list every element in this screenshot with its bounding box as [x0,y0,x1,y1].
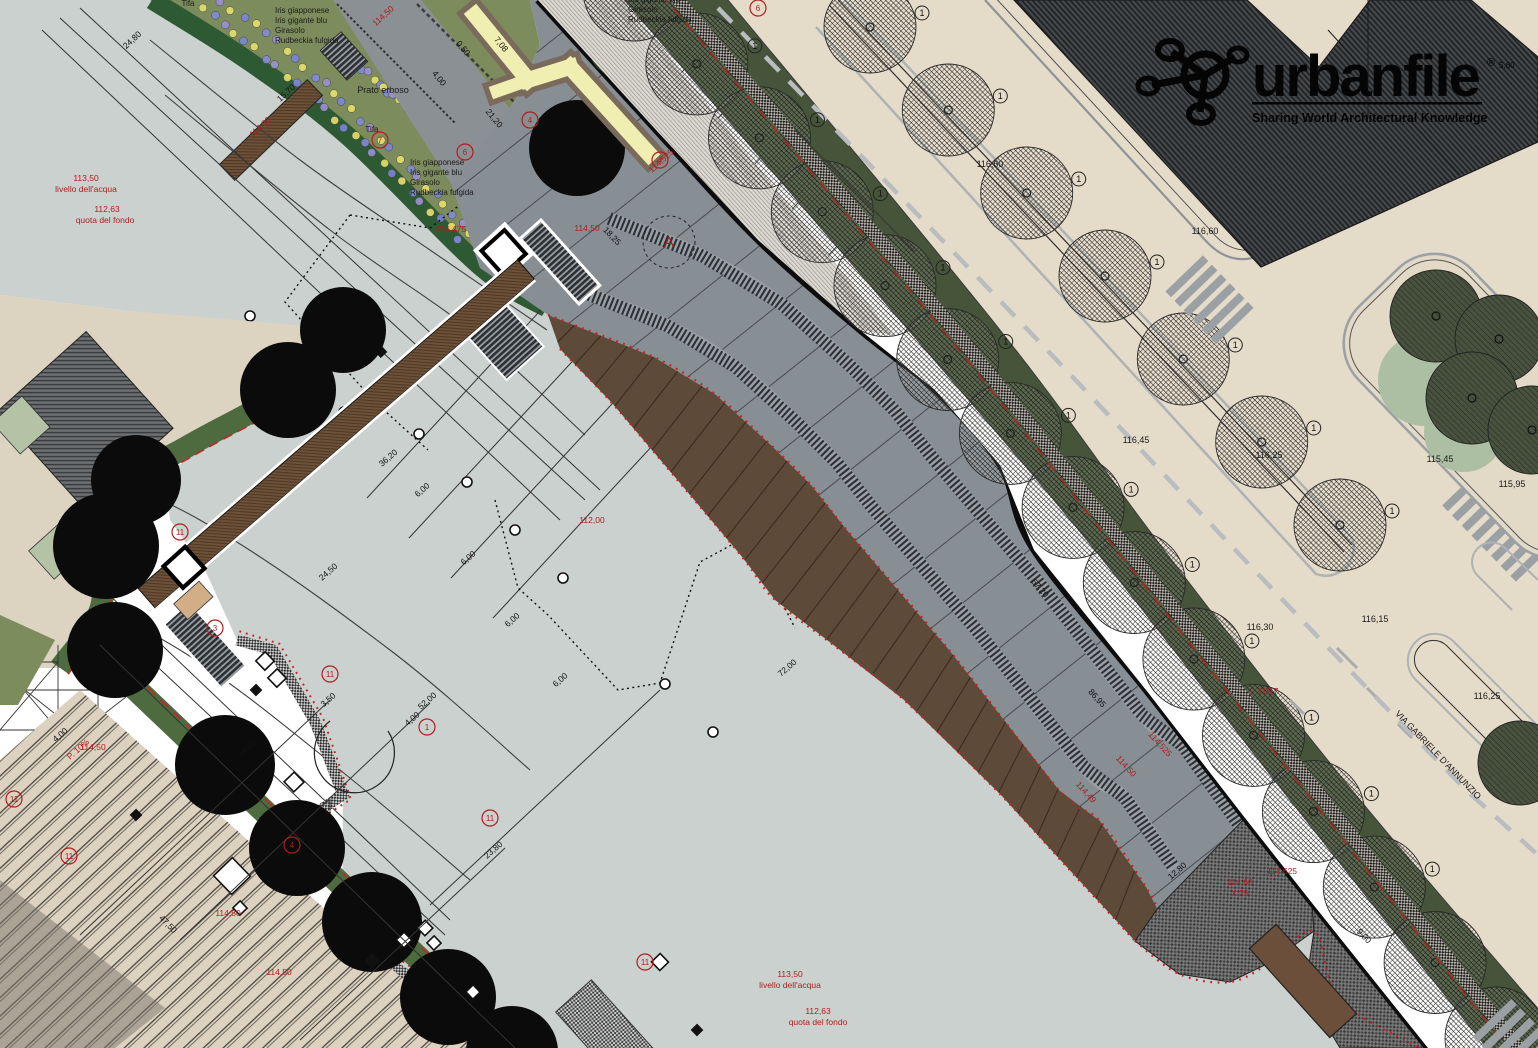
svg-text:115,45: 115,45 [1427,454,1454,464]
svg-text:3: 3 [213,624,218,633]
svg-text:urbanfile: urbanfile [1252,44,1480,109]
svg-text:112,63: 112,63 [805,1006,831,1016]
svg-text:6: 6 [463,148,468,157]
svg-text:116,25: 116,25 [1256,450,1283,460]
svg-text:Iris gigante blu: Iris gigante blu [628,0,680,4]
svg-text:4: 4 [290,841,295,850]
svg-text:1: 1 [919,8,924,18]
svg-text:114,50: 114,50 [266,967,292,977]
svg-text:11: 11 [10,795,19,804]
svg-text:1: 1 [1249,636,1254,646]
svg-text:116,15: 116,15 [1362,614,1389,624]
svg-text:116,60: 116,60 [1192,226,1219,236]
svg-text:Girasolo: Girasolo [410,178,440,187]
svg-text:Iris gigante blu: Iris gigante blu [410,168,462,177]
svg-text:5,60: 5,60 [1499,61,1515,70]
svg-text:11: 11 [486,814,495,823]
svg-text:114,50: 114,50 [574,223,600,233]
svg-text:4: 4 [658,156,663,165]
svg-text:1: 1 [1076,174,1081,184]
svg-text:Iris giapponese: Iris giapponese [275,6,330,15]
svg-text:1: 1 [1369,789,1374,799]
svg-text:®: ® [1487,57,1495,69]
svg-text:116,30: 116,30 [1247,622,1274,632]
svg-text:X,25: X,25 [1231,888,1249,898]
svg-text:quota del fondo: quota del fondo [76,215,135,225]
svg-text:Girasolo: Girasolo [275,26,305,35]
svg-text:Sharing World Architectural Kn: Sharing World Architectural Knowledge [1252,111,1487,125]
svg-text:114,50: 114,50 [215,908,241,918]
svg-text:7: 7 [378,136,383,145]
svg-text:livello dell'acqua: livello dell'acqua [759,980,821,990]
svg-text:Girasolo: Girasolo [628,5,658,14]
svg-text:116,25: 116,25 [1474,691,1501,701]
svg-text:112,63: 112,63 [94,204,120,214]
svg-text:116,60: 116,60 [977,159,1004,169]
svg-text:Tifa: Tifa [365,125,379,134]
svg-text:1: 1 [815,115,820,125]
svg-text:Rudbeckia fulgida: Rudbeckia fulgida [410,188,474,197]
svg-text:Rudbeckia fulgida: Rudbeckia fulgida [628,15,692,24]
svg-text:Prato erboso: Prato erboso [357,85,409,95]
svg-text:1: 1 [1154,257,1159,267]
svg-text:1: 1 [1233,340,1238,350]
svg-text:112,00: 112,00 [579,515,605,525]
svg-text:113,50: 113,50 [777,969,803,979]
svg-text:114,60: 114,60 [1227,877,1253,887]
svg-text:1: 1 [878,189,883,199]
svg-text:quota del fondo: quota del fondo [789,1017,848,1027]
svg-text:1: 1 [1129,484,1134,494]
svg-text:116,45: 116,45 [1123,435,1150,445]
svg-text:11: 11 [65,852,74,861]
svg-text:Iris giapponese: Iris giapponese [410,158,465,167]
svg-text:115,95: 115,95 [1499,479,1526,489]
svg-text:113,50: 113,50 [73,173,99,183]
svg-text:116,7: 116,7 [1258,686,1279,696]
svg-text:livello dell'acqua: livello dell'acqua [55,184,117,194]
svg-text:6: 6 [756,4,761,13]
svg-text:1: 1 [1430,864,1435,874]
svg-text:114,625: 114,625 [1267,866,1297,876]
svg-text:1: 1 [998,91,1003,101]
svg-text:1: 1 [940,263,945,273]
svg-text:1: 1 [425,723,430,732]
svg-text:11: 11 [641,958,650,967]
svg-text:Rudbeckia fulgida: Rudbeckia fulgida [275,36,339,45]
svg-text:1: 1 [1066,410,1071,420]
svg-text:Iris gigante blu: Iris gigante blu [275,16,327,25]
svg-text:1: 1 [1311,423,1316,433]
svg-text:1: 1 [1309,712,1314,722]
svg-text:1: 1 [1003,337,1008,347]
svg-text:Tifa: Tifa [181,0,195,8]
svg-text:A: A [664,234,674,251]
svg-text:114.475: 114.475 [436,224,466,234]
svg-text:1: 1 [1389,506,1394,516]
svg-text:4: 4 [528,116,533,125]
svg-text:1: 1 [752,41,757,51]
svg-text:1: 1 [1190,560,1195,570]
svg-text:11: 11 [176,528,185,537]
svg-text:11: 11 [326,670,335,679]
